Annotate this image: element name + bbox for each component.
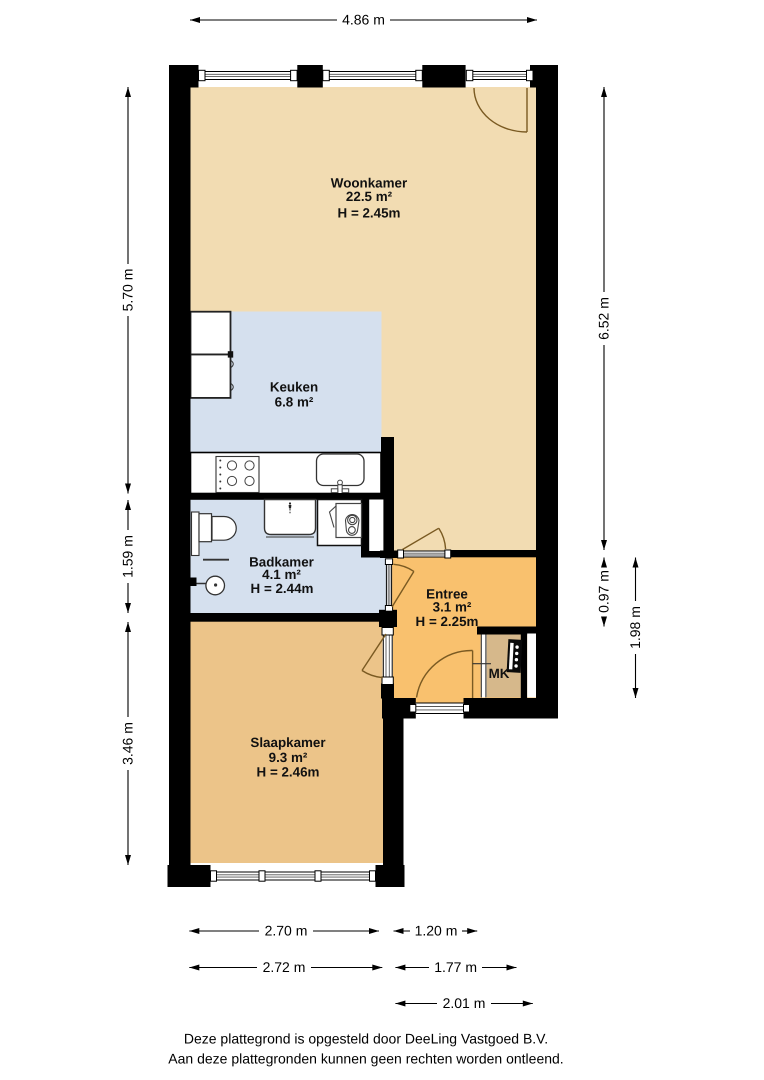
svg-text:Slaapkamer: Slaapkamer — [250, 735, 326, 750]
svg-text:6.52 m: 6.52 m — [596, 297, 612, 340]
svg-text:2.01 m: 2.01 m — [443, 995, 486, 1011]
svg-text:3.1 m²: 3.1 m² — [433, 600, 472, 615]
svg-text:MK: MK — [489, 666, 510, 681]
svg-text:1.59 m: 1.59 m — [120, 535, 136, 578]
svg-text:H = 2.46m: H = 2.46m — [257, 765, 320, 780]
svg-text:6.8 m²: 6.8 m² — [275, 394, 314, 409]
svg-text:Deze plattegrond is opgesteld: Deze plattegrond is opgesteld door DeeLi… — [184, 1031, 548, 1047]
svg-text:4.86 m: 4.86 m — [342, 12, 385, 28]
svg-text:1.77 m: 1.77 m — [434, 959, 477, 975]
svg-text:1.98 m: 1.98 m — [627, 606, 643, 649]
svg-text:2.72 m: 2.72 m — [263, 959, 306, 975]
svg-text:3.46 m: 3.46 m — [120, 722, 136, 765]
svg-text:H = 2.45m: H = 2.45m — [338, 205, 401, 220]
svg-text:1.20 m: 1.20 m — [415, 923, 458, 939]
svg-text:9.3 m²: 9.3 m² — [269, 750, 308, 765]
svg-text:0.97 m: 0.97 m — [596, 570, 612, 613]
svg-text:4.1 m²: 4.1 m² — [262, 567, 301, 582]
svg-text:H = 2.44m: H = 2.44m — [251, 581, 314, 596]
svg-text:H = 2.25m: H = 2.25m — [416, 614, 479, 629]
svg-text:Woonkamer: Woonkamer — [331, 175, 408, 190]
svg-text:Keuken: Keuken — [270, 379, 318, 394]
svg-text:Aan deze plattegronden kunnen: Aan deze plattegronden kunnen geen recht… — [168, 1051, 563, 1067]
svg-text:5.70 m: 5.70 m — [120, 269, 136, 312]
svg-text:2.70 m: 2.70 m — [265, 923, 308, 939]
svg-text:22.5 m²: 22.5 m² — [346, 189, 393, 204]
